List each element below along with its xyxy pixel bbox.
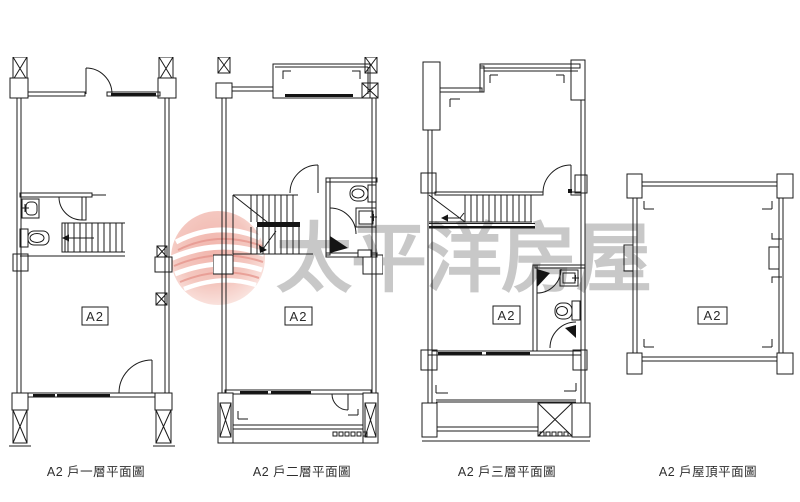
- balcony-door-arc: [332, 394, 348, 410]
- back-door-arc: [119, 360, 152, 393]
- windows: [33, 93, 156, 397]
- columns: [627, 174, 793, 374]
- windows: [240, 391, 311, 394]
- sink: [356, 208, 377, 227]
- hall-door-arc: [290, 165, 318, 193]
- bathroom: [20, 193, 106, 247]
- railing-dashes: [333, 432, 367, 436]
- unit-label-box: A2: [285, 307, 312, 325]
- floorplan-sheet: 太平洋房屋: [0, 0, 800, 502]
- floor-plan-first-floor: A2: [8, 57, 178, 447]
- floor-plan-roof: A2: [622, 173, 794, 375]
- entry-door-arc: [86, 68, 112, 94]
- unit-label: A2: [498, 308, 516, 323]
- floor-plan-third-floor: A2: [420, 55, 592, 443]
- bottom-columns: [9, 393, 175, 446]
- sink: [560, 270, 579, 286]
- columns: [213, 57, 383, 274]
- corner-brackets: [644, 201, 772, 347]
- wall-notches: [624, 233, 782, 283]
- unit-label: A2: [86, 309, 104, 324]
- toilet: [555, 301, 580, 320]
- unit-label: A2: [290, 309, 308, 324]
- balcony-bottom: [422, 355, 590, 441]
- bathroom: [533, 265, 585, 351]
- caption-third-floor: A2 戶三層平面圖: [422, 461, 592, 480]
- outer-walls: [633, 182, 783, 361]
- unit-label-box: A2: [698, 307, 727, 324]
- balcony-bottom: [218, 393, 378, 443]
- bathroom: [326, 178, 377, 257]
- sink: [22, 199, 39, 218]
- stairs: [233, 195, 313, 254]
- toilet: [20, 229, 49, 247]
- windows: [438, 352, 530, 355]
- caption-first-floor: A2 戶一層平面圖: [11, 461, 181, 480]
- balcony-top: [273, 64, 370, 98]
- stairs: [429, 195, 535, 229]
- caption-second-floor: A2 戶二層平面圖: [217, 461, 387, 480]
- unit-label-box: A2: [82, 307, 108, 325]
- floor-plan-second-floor: A2: [213, 57, 383, 447]
- stairs: [20, 223, 125, 256]
- room-door-arc: [543, 165, 572, 193]
- unit-label-box: A2: [493, 306, 520, 324]
- caption-roof: A2 戶屋頂平面圖: [623, 461, 793, 480]
- unit-label: A2: [704, 308, 722, 323]
